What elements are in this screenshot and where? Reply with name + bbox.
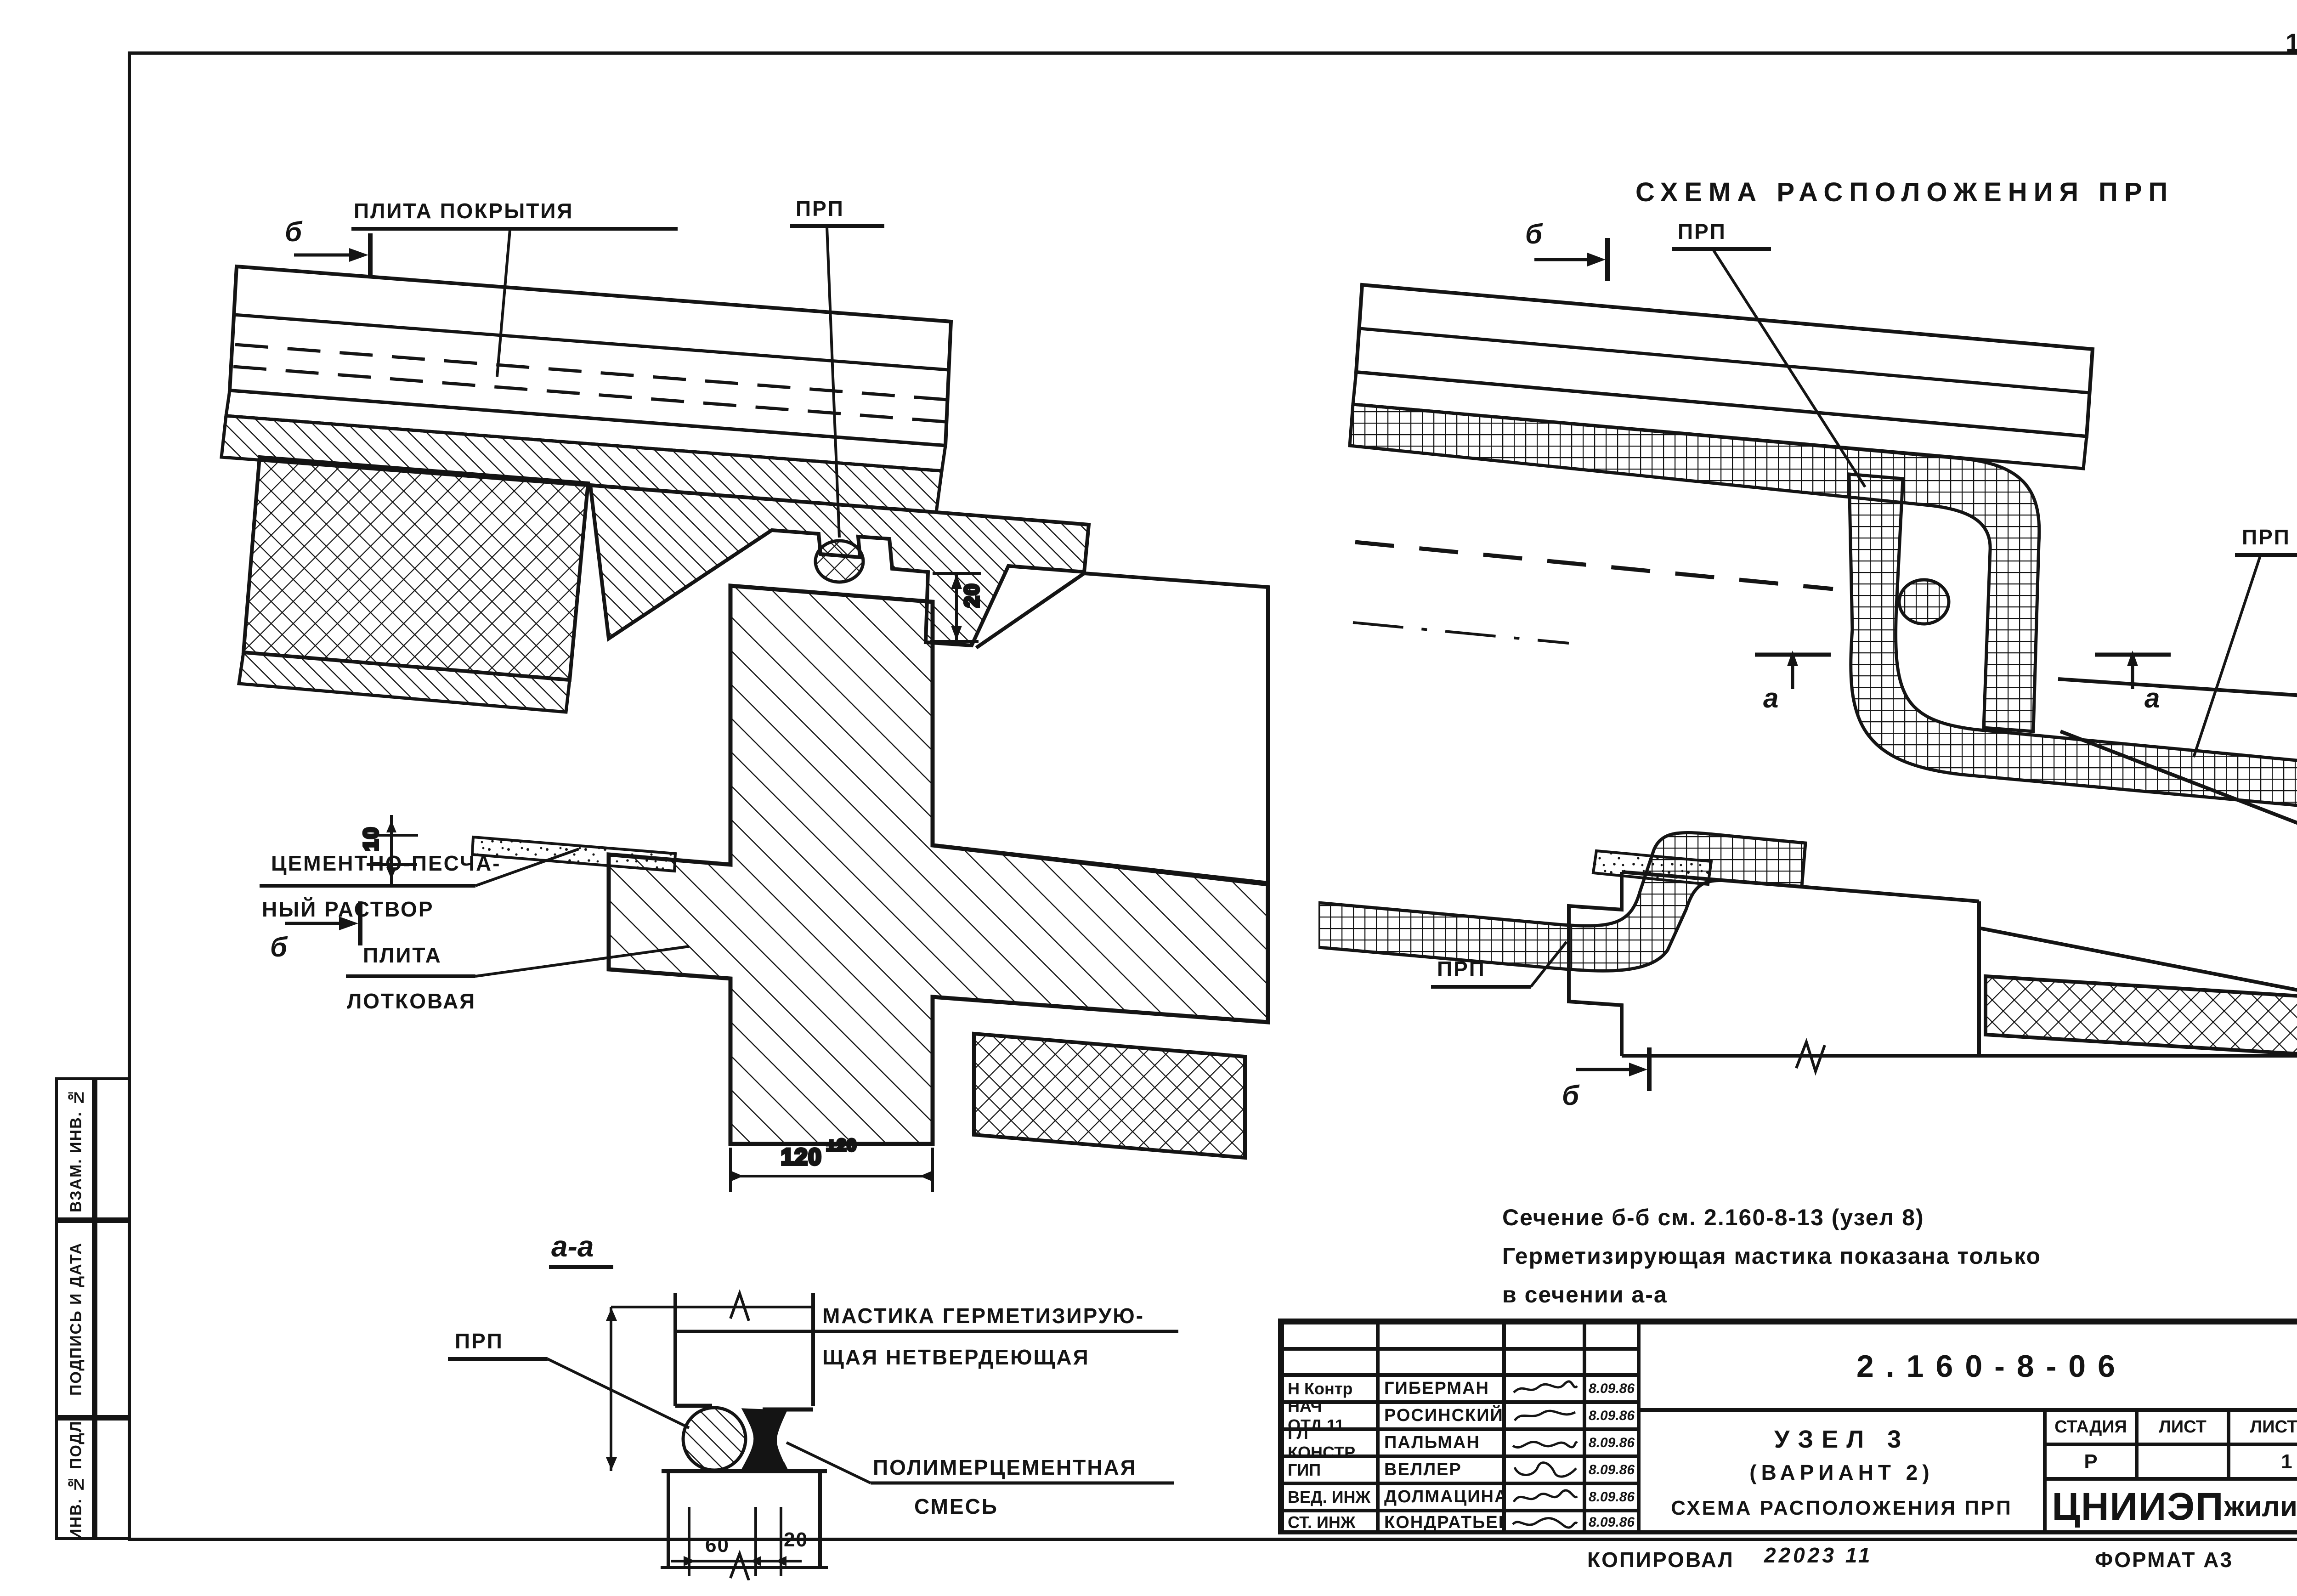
svg-text:±20: ±20 (827, 1136, 857, 1155)
signature-squiggle (1510, 1380, 1579, 1398)
tb-role-vedinzh: ВЕД. ИНЖ (1282, 1483, 1378, 1511)
label-polymer-2: СМЕСЬ (914, 1494, 998, 1518)
tb-role-nachotd: НАЧ ОТД.11 (1282, 1402, 1378, 1429)
tb-signature (1504, 1402, 1584, 1429)
tb-sheet-value (2137, 1444, 2229, 1479)
tb-stage-label: СТАДИЯ (2045, 1410, 2137, 1444)
tb-role-nkontr: Н Контр (1282, 1375, 1378, 1402)
label-tray-1: ПЛИТА (363, 943, 442, 967)
section-aa-drawing: а-а (413, 1213, 1194, 1580)
label-mastic-2: ЩАЯ НЕТВЕРДЕЮЩАЯ (822, 1345, 1090, 1369)
note-line-3: в сечении а-а (1502, 1275, 2041, 1314)
svg-text:a: a (2144, 683, 2160, 713)
tb-signature (1504, 1511, 1584, 1534)
stamp-podpis-blank (92, 1217, 130, 1421)
tb-sheets-value: 1 (2229, 1444, 2297, 1479)
note-line-2: Герметизирующая мастика показана только (1502, 1237, 2041, 1275)
signature-squiggle (1510, 1461, 1579, 1479)
left-detail-drawing: ПЛИТА ПОКРЫТИЯ ПРП ЦЕМЕНТНО-ПЕСЧА- НЫЙ Р… (216, 170, 1291, 1208)
prp-gasket (815, 541, 863, 582)
label-cement-2: НЫЙ РАСТВОР (262, 897, 434, 921)
tb-name-kondratyeva: КОНДРАТЬЕВА (1378, 1511, 1504, 1534)
svg-text:б: б (1525, 219, 1543, 249)
tb-name-veller: ВЕЛЛЕР (1378, 1456, 1504, 1483)
tb-date: 8.09.86 (1584, 1456, 1639, 1483)
tb-signature (1504, 1375, 1584, 1402)
tb-role-gip: ГИП (1282, 1456, 1378, 1483)
note-line-1: Сечение б-б см. 2.160-8-13 (узел 8) (1502, 1198, 2041, 1237)
dim-20-aa: 20 (784, 1528, 808, 1551)
signature-squiggle (1510, 1513, 1579, 1532)
tb-date: 8.09.86 (1584, 1483, 1639, 1511)
tb-date: 8.09.86 (1584, 1402, 1639, 1429)
tb-name-giberman: ГИБЕРМАН (1378, 1375, 1504, 1402)
tb-name-dolmacina: ДОЛМАЦИНА (1378, 1483, 1504, 1511)
section-marker-b-top: б (285, 216, 370, 277)
tb-title-line1: УЗЕЛ 3 (1774, 1425, 1909, 1454)
tb-role-glkonstr: ГЛ КОНСТР. (1282, 1429, 1378, 1456)
tb-signature (1504, 1429, 1584, 1456)
right-detail-drawing: ПРП ПРП ПРП б б a a (1318, 193, 2297, 1121)
svg-text:120: 120 (781, 1144, 822, 1170)
prp-gasket-right (1899, 580, 1949, 624)
tb-empty-cell (1282, 1349, 1378, 1375)
signature-squiggle (1510, 1407, 1579, 1425)
insulation-block-right (974, 1034, 1245, 1158)
tb-name-rosinsky: РОСИНСКИЙ (1378, 1402, 1504, 1429)
stamp-vzam-inv-blank (92, 1077, 130, 1223)
tb-empty-cell (1584, 1323, 1639, 1349)
stamp-podpis-text: ПОДПИСЬ И ДАТА (58, 1220, 95, 1418)
stamp-inv-podl-label: ИНВ. № ПОДЛ. (55, 1415, 97, 1540)
tb-role-stinzh: СТ. ИНЖ (1282, 1511, 1378, 1534)
tb-title-line3: СХЕМА РАСПОЛОЖЕНИЯ ПРП (1671, 1497, 2013, 1520)
drawing-note: Сечение б-б см. 2.160-8-13 (узел 8) Герм… (1502, 1198, 2041, 1314)
footer-copied-label: КОПИРОВАЛ (1587, 1547, 1734, 1572)
dim-60: 60 (705, 1534, 730, 1556)
label-prp-left: ПРП (796, 197, 844, 221)
label-mastic-1: МАСТИКА ГЕРМЕТИЗИРУЮ- (822, 1304, 1144, 1328)
tb-document-code: 2.160-8-06 (1639, 1323, 2297, 1410)
prp-strip-column (1849, 474, 2297, 806)
svg-text:10: 10 (360, 826, 382, 851)
svg-text:б: б (1562, 1080, 1580, 1111)
tb-drawing-title: УЗЕЛ 3 (ВАРИАНТ 2) СХЕМА РАСПОЛОЖЕНИЯ ПР… (1639, 1410, 2045, 1534)
footer-copied-value: 22023 11 (1764, 1543, 1873, 1568)
tb-date: 8.09.86 (1584, 1375, 1639, 1402)
tb-stage-value: Р (2045, 1444, 2137, 1479)
signature-squiggle (1510, 1434, 1579, 1452)
tb-date: 8.09.86 (1584, 1429, 1639, 1456)
prp-strip-lower (1318, 832, 1805, 971)
tb-empty-cell (1504, 1323, 1584, 1349)
tb-org-part1: ЦНИИЭП (2052, 1484, 2224, 1529)
label-roof-slab: ПЛИТА ПОКРЫТИЯ (354, 199, 573, 223)
stamp-podpis-label: ПОДПИСЬ И ДАТА (55, 1217, 97, 1421)
section-marker-b-top-right: б (1525, 219, 1607, 281)
section-aa-title: а-а (551, 1230, 594, 1263)
title-block: Н Контр ГИБЕРМАН 8.09.86 НАЧ ОТД.11 РОСИ… (1278, 1319, 2297, 1534)
insulation-block (243, 457, 588, 680)
tb-empty-cell (1504, 1349, 1584, 1375)
stamp-inv-podl-text: ИНВ. № ПОДЛ. (58, 1418, 95, 1537)
label-prp-top: ПРП (1678, 220, 1726, 243)
tb-org-part2: жилища (2224, 1490, 2297, 1523)
tb-sheet-label: ЛИСТ (2137, 1410, 2229, 1444)
label-polymer-1: ПОЛИМЕРЦЕМЕНТНАЯ (873, 1455, 1137, 1479)
tb-empty-cell (1584, 1349, 1639, 1375)
tb-empty-cell (1378, 1349, 1504, 1375)
footer-format: ФОРМАТ А3 (2095, 1547, 2233, 1572)
tb-empty-cell (1378, 1323, 1504, 1349)
tb-empty-cell (1282, 1323, 1378, 1349)
svg-text:20: 20 (961, 583, 983, 607)
label-prp-right: ПРП (2242, 525, 2291, 549)
tb-organization: ЦНИИЭПжилища (2045, 1479, 2297, 1534)
prp-gasket-section (683, 1408, 746, 1470)
svg-text:б: б (270, 932, 288, 962)
tb-signature (1504, 1456, 1584, 1483)
tb-title-line2: (ВАРИАНТ 2) (1749, 1460, 1934, 1485)
label-tray-2: ЛОТКОВАЯ (347, 989, 476, 1013)
tb-sheets-label: ЛИСТОВ (2229, 1410, 2297, 1444)
stamp-inv-podl-blank (92, 1415, 130, 1540)
insulation-right-detail (1986, 976, 2297, 1056)
tb-date: 8.09.86 (1584, 1511, 1639, 1534)
sheet: 10 ВЗАМ. ИНВ. № ПОДПИСЬ И ДАТА ИНВ. № ПО… (0, 0, 2297, 1596)
section-marker-a-left: a (1755, 651, 1831, 713)
signature-squiggle (1510, 1488, 1579, 1506)
label-prp-aa: ПРП (455, 1329, 504, 1353)
tb-name-palman: ПАЛЬМАН (1378, 1429, 1504, 1456)
stamp-vzam-inv-text: ВЗАМ. ИНВ. № (58, 1080, 95, 1220)
svg-text:б: б (285, 216, 303, 247)
stamp-vzam-inv-label: ВЗАМ. ИНВ. № (55, 1077, 97, 1223)
svg-text:a: a (1763, 683, 1778, 713)
tb-signature (1504, 1483, 1584, 1511)
label-prp-bottom: ПРП (1437, 957, 1486, 981)
